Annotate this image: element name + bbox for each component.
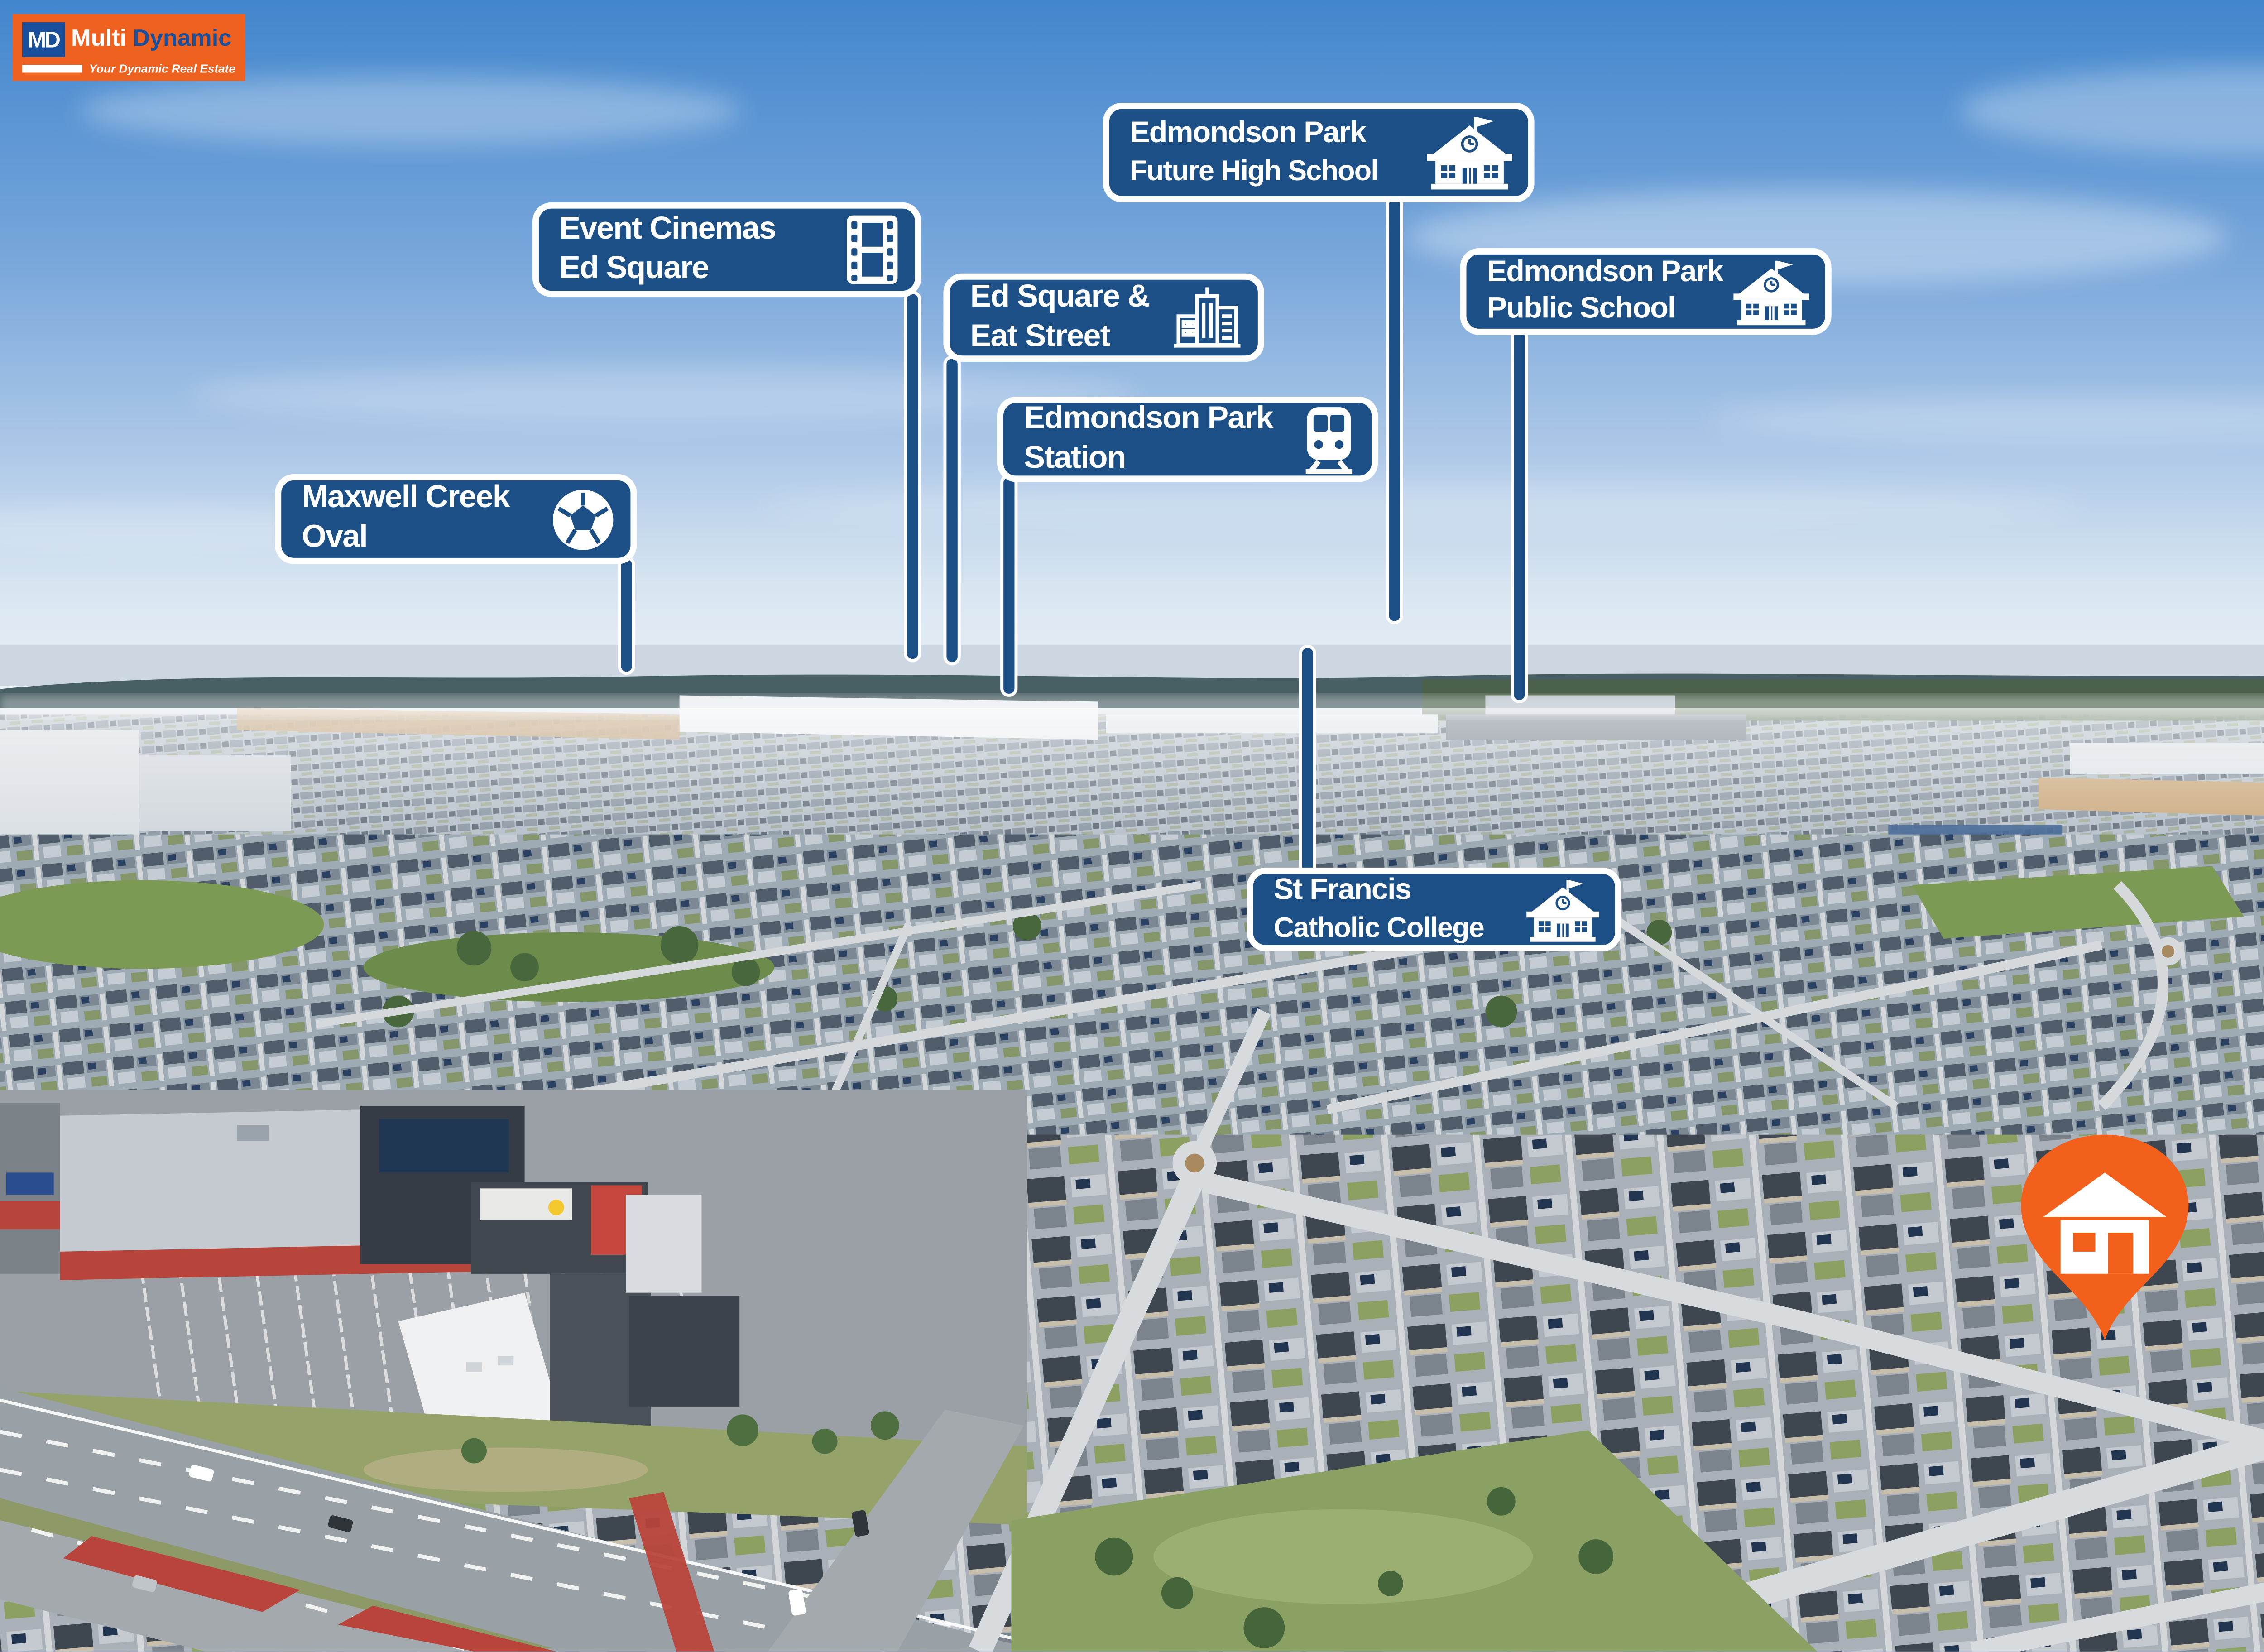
- label-st-francis-catholic-college: St Francis Catholic College: [1247, 868, 1621, 951]
- label-line1: Maxwell Creek: [302, 481, 509, 518]
- label-line1: Event Cinemas: [559, 211, 776, 249]
- label-edmondson-park-station: Edmondson Park Station: [997, 397, 1378, 482]
- label-line1: Ed Square &: [970, 279, 1150, 317]
- property-location-pin: [2018, 1132, 2192, 1344]
- school-icon: [1427, 114, 1512, 191]
- logo-tagline: Your Dynamic Real Estate: [89, 62, 235, 76]
- label-line1: Edmondson Park: [1487, 255, 1721, 291]
- label-line2: Eat Street: [970, 318, 1150, 355]
- label-line1: Edmondson Park: [1024, 401, 1273, 438]
- soccer-ball-icon: [552, 488, 615, 551]
- pointer-line-ed-square-eat-street: [943, 355, 960, 665]
- label-edmondson-park-future-high-school: Edmondson Park Future High School: [1103, 103, 1535, 202]
- label-line1: St Francis: [1274, 874, 1484, 910]
- cinema-icon: [845, 213, 899, 286]
- brand-logo: MD Multi Dynamic Your Dynamic Real Estat…: [13, 14, 245, 81]
- label-line2: Future High School: [1130, 154, 1378, 188]
- label-ed-square-eat-street: Ed Square & Eat Street: [943, 274, 1264, 362]
- label-line2: Ed Square: [559, 250, 776, 288]
- label-line2: Station: [1024, 440, 1273, 477]
- label-maxwell-creek-oval: Maxwell Creek Oval: [275, 474, 637, 564]
- train-icon: [1302, 404, 1356, 474]
- city-buildings-icon: [1172, 284, 1242, 351]
- school-icon: [1526, 876, 1599, 943]
- pointer-line-future-high-school: [1386, 196, 1403, 624]
- school-icon: [1733, 257, 1809, 327]
- label-event-cinemas-ed-square: Event Cinemas Ed Square: [532, 202, 921, 297]
- label-line2: Oval: [302, 520, 509, 557]
- annotated-aerial-map: Maxwell Creek Oval Event Cinemas Ed Squa…: [0, 0, 2264, 1652]
- pointer-line-maxwell-creek-oval: [618, 556, 635, 675]
- logo-name-multi: Multi: [71, 25, 126, 52]
- label-line2: Public School: [1487, 293, 1721, 328]
- aerial-suburb-photo: [0, 0, 2264, 1652]
- label-line2: Catholic College: [1274, 911, 1484, 945]
- logo-underline-bar: [22, 65, 83, 72]
- pointer-line-st-francis: [1299, 645, 1316, 882]
- pointer-line-edmondson-park-station: [1000, 474, 1017, 697]
- logo-md-monogram: MD: [22, 21, 65, 56]
- pointer-line-public-school: [1511, 329, 1528, 703]
- pointer-line-event-cinemas: [904, 291, 921, 662]
- label-line1: Edmondson Park: [1130, 117, 1378, 153]
- label-edmondson-park-public-school: Edmondson Park Public School: [1460, 248, 1832, 335]
- logo-name-dynamic: Dynamic: [133, 25, 231, 52]
